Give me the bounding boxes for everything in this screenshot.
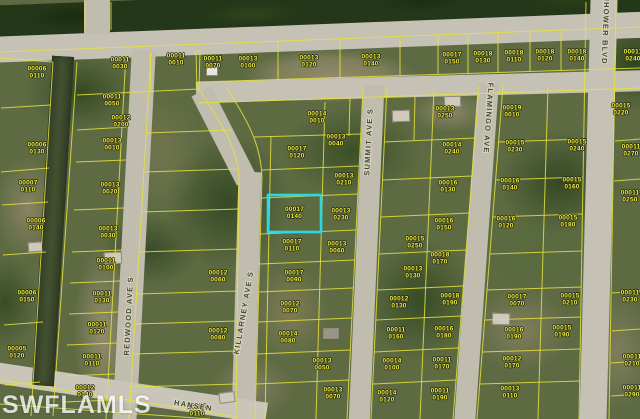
svg-text:00014: 00014 [377,390,396,397]
svg-text:00015: 00015 [567,139,586,146]
svg-text:00011: 00011 [624,49,640,56]
svg-text:0130: 0130 [29,149,44,156]
svg-text:00012: 00012 [111,115,130,122]
parcel-id-label: 000110230 [621,290,640,304]
parcel-id-label: 000130210 [334,173,353,187]
svg-text:00017: 00017 [282,239,301,246]
parcel-id-label: 000130050 [312,358,331,372]
parcel-id-label: 000180190 [440,293,459,307]
parcel-id-label: 000110070 [204,56,223,70]
street-name-label: KILLARNEY AVE S [232,270,256,355]
svg-text:00016: 00016 [434,218,453,225]
svg-text:0120: 0120 [379,397,394,404]
svg-text:00013: 00013 [361,54,380,61]
svg-text:00016: 00016 [496,216,515,223]
parcel-id-label: 000060130 [27,142,46,156]
parcel-id-label: 000110010 [167,53,186,67]
parcel-id-label: 000110160 [387,327,406,341]
parcel-id-label: 000110100 [97,258,116,272]
svg-text:00016: 00016 [434,326,453,333]
parcel-id-label: 000160190 [504,327,523,341]
svg-text:0210: 0210 [336,180,351,187]
svg-text:0130: 0130 [94,298,109,305]
svg-text:00013: 00013 [327,241,346,248]
svg-text:00017: 00017 [442,52,461,59]
parcel-id-label: 000070110 [18,180,37,194]
svg-text:00013: 00013 [334,173,353,180]
svg-text:00013: 00013 [100,182,119,189]
svg-text:00012: 00012 [208,328,227,335]
parcel-id-label: 000060110 [27,66,46,80]
svg-text:00013: 00013 [435,106,454,113]
parcel-id-label: 000130140 [361,54,380,68]
svg-text:00015: 00015 [552,325,571,332]
svg-text:0120: 0120 [301,62,316,69]
svg-text:0230: 0230 [622,297,637,304]
svg-text:0050: 0050 [314,365,329,372]
svg-text:00011: 00011 [103,94,122,101]
parcel-id-label: 000160130 [438,180,457,194]
svg-text:0160: 0160 [564,184,579,191]
parcel-lines-summit-flamingo [373,138,475,384]
parcel-id-label: 000110110 [83,354,102,368]
parcel-id-label: 000170090 [284,270,303,284]
svg-text:00013: 00013 [323,387,342,394]
svg-text:00015: 00015 [405,236,424,243]
svg-text:00015: 00015 [558,215,577,222]
svg-text:0160: 0160 [388,334,403,341]
parcel-id-label: 000170150 [442,52,461,66]
svg-text:0100: 0100 [98,265,113,272]
svg-text:0200: 0200 [113,122,128,129]
svg-text:0070: 0070 [282,308,297,315]
parcel-id-label: 000180170 [430,252,449,266]
svg-text:00019: 00019 [502,105,521,112]
svg-text:00013: 00013 [299,55,318,62]
svg-text:00011: 00011 [431,388,450,395]
svg-text:00005: 00005 [7,346,26,353]
parcel-id-label: 000150220 [611,103,630,117]
parcel-id-label: 000050120 [7,346,26,360]
svg-text:00016: 00016 [500,178,519,185]
svg-text:0030: 0030 [100,233,115,240]
parcel-id-label: 000110240 [624,49,640,63]
svg-text:00013: 00013 [331,208,350,215]
parcel-id-label: 000130060 [327,241,346,255]
parcel-id-label: 000120070 [280,301,299,315]
svg-text:0150: 0150 [19,297,34,304]
svg-text:00015: 00015 [560,293,579,300]
svg-text:00018: 00018 [567,49,586,56]
svg-text:00013: 00013 [312,358,331,365]
svg-text:00014: 00014 [382,358,401,365]
parcel-id-label: 000110120 [88,322,107,336]
svg-text:0040: 0040 [328,141,343,148]
svg-text:0150: 0150 [444,59,459,66]
svg-text:0110: 0110 [190,411,205,418]
svg-text:00016: 00016 [504,327,523,334]
svg-text:00014: 00014 [442,142,461,149]
parcel-id-label: 000130110 [500,386,519,400]
svg-text:0190: 0190 [432,395,447,402]
svg-text:0250: 0250 [407,243,422,250]
svg-text:0150: 0150 [436,225,451,232]
svg-text:0130: 0130 [391,303,406,310]
svg-text:0130: 0130 [475,58,490,65]
svg-text:00011: 00011 [387,327,406,334]
parcel-id-label: 000160180 [434,326,453,340]
svg-text:0080: 0080 [280,338,295,345]
svg-text:00012: 00012 [208,270,227,277]
svg-text:0090: 0090 [286,277,301,284]
parcel-id-label: 000110170 [433,357,452,371]
parcel-id-label: 000130040 [326,134,345,148]
svg-text:0100: 0100 [384,365,399,372]
parcel-id-label: 000060140 [26,218,45,232]
parcel-id-label: 000180130 [473,51,492,65]
parcel-id-label: 000110270 [622,144,640,158]
svg-text:0020: 0020 [102,189,117,196]
parcel-id-label: 000170120 [287,146,306,160]
svg-text:0190: 0190 [442,300,457,307]
svg-text:00013: 00013 [102,138,121,145]
parcel-id-label: 000130030 [98,226,117,240]
parcel-id-label: 000130010 [102,138,121,152]
svg-text:00016: 00016 [438,180,457,187]
svg-text:00011: 00011 [93,291,112,298]
parcel-id-label: 000060150 [17,290,36,304]
parcel-id-label: 000110030 [111,57,130,71]
svg-text:00013: 00013 [403,266,422,273]
svg-text:00006: 00006 [17,290,36,297]
svg-text:0110: 0110 [507,57,522,64]
parcel-id-label: 000110290 [623,385,640,399]
svg-text:0140: 0140 [363,61,378,68]
svg-text:00015: 00015 [505,140,524,147]
svg-text:00017: 00017 [284,270,303,277]
parcel-id-label: 000140080 [278,331,297,345]
parcel-id-label: 000130130 [403,266,422,280]
parcel-id-label: 000160120 [496,216,515,230]
svg-text:0170: 0170 [504,363,519,370]
svg-text:00015: 00015 [611,103,630,110]
svg-text:00018: 00018 [473,51,492,58]
parcel-id-label: 000110210 [623,354,640,368]
street-name-label: NHOWER BLVD [600,0,611,65]
svg-text:0010: 0010 [504,112,519,119]
svg-text:00011: 00011 [88,322,107,329]
svg-text:0250: 0250 [437,113,452,120]
parcel-id-label: 000120060 [208,270,227,284]
parcel-id-label: 000120200 [111,115,130,129]
svg-text:0110: 0110 [503,393,518,400]
parcel-id-label: 000120170 [502,356,521,370]
svg-text:00011: 00011 [433,357,452,364]
svg-text:0120: 0120 [537,56,552,63]
street-name-label: SUMMIT AVE S [362,108,375,176]
parcel-id-label: 000120130 [389,296,408,310]
svg-text:00011: 00011 [621,190,640,197]
svg-text:0110: 0110 [285,246,300,253]
svg-text:0010: 0010 [104,145,119,152]
svg-text:00007: 00007 [18,180,37,187]
svg-text:0140: 0140 [28,225,43,232]
svg-text:0250: 0250 [622,197,637,204]
svg-text:0220: 0220 [613,110,628,117]
svg-text:0130: 0130 [440,187,455,194]
parcel-id-label: 000140120 [377,390,396,404]
svg-text:00011: 00011 [623,354,640,361]
svg-text:0210: 0210 [562,300,577,307]
parcel-id-label: 000130070 [323,387,342,401]
svg-text:00006: 00006 [27,66,46,73]
svg-text:00013: 00013 [500,386,519,393]
svg-text:0110: 0110 [85,361,100,368]
parcel-id-label: 000110050 [103,94,122,108]
svg-text:00018: 00018 [504,50,523,57]
parcel-boundary-overlay: 0000601100000601300000701100000601400000… [0,0,640,419]
parcel-id-label: 000140010 [307,111,326,125]
svg-text:0120: 0120 [9,353,24,360]
svg-text:00011: 00011 [204,56,223,63]
parcel-id-label: 000130230 [331,208,350,222]
svg-text:00006: 00006 [26,218,45,225]
svg-text:0240: 0240 [569,146,584,153]
parcel-lines-canal-redwood [64,50,200,402]
parcel-id-label: 000180120 [535,49,554,63]
parcel-id-label: 000160150 [434,218,453,232]
svg-text:0070: 0070 [509,301,524,308]
parcel-id-label: 000110250 [621,190,640,204]
parcel-id-label: 000150230 [505,140,524,154]
parcel-id-label: 000180110 [504,50,523,64]
svg-text:0060: 0060 [210,277,225,284]
svg-text:00018: 00018 [430,252,449,259]
svg-text:0070: 0070 [325,394,340,401]
svg-text:0170: 0170 [432,259,447,266]
svg-text:00018: 00018 [535,49,554,56]
svg-text:0010: 0010 [168,60,183,67]
svg-text:0270: 0270 [623,151,638,158]
svg-text:00012: 00012 [389,296,408,303]
parcel-id-label: 000180140 [567,49,586,63]
svg-text:0110: 0110 [21,187,36,194]
parcel-id-label: 000130250 [435,106,454,120]
svg-text:00013: 00013 [98,226,117,233]
svg-text:00011: 00011 [621,290,640,297]
svg-text:00017: 00017 [507,294,526,301]
svg-text:00011: 00011 [623,385,640,392]
svg-text:0120: 0120 [289,153,304,160]
svg-text:0140: 0140 [502,185,517,192]
parcel-id-label: 000150210 [560,293,579,307]
aerial-map-view[interactable]: 0000601100000601300000701100000601400000… [0,0,640,419]
svg-text:0240: 0240 [625,56,640,63]
parcel-id-label: 000110190 [431,388,450,402]
svg-text:0080: 0080 [210,335,225,342]
parcel-id-label: 000130020 [100,182,119,196]
svg-text:0140: 0140 [287,213,302,220]
svg-text:0030: 0030 [112,64,127,71]
svg-text:0190: 0190 [554,332,569,339]
svg-text:0070: 0070 [205,63,220,70]
svg-text:00013: 00013 [326,134,345,141]
svg-text:00011: 00011 [167,53,186,60]
svg-text:0100: 0100 [240,63,255,70]
svg-text:0230: 0230 [507,147,522,154]
svg-text:0140: 0140 [569,56,584,63]
svg-text:0230: 0230 [333,215,348,222]
parcel-id-label: 000150180 [558,215,577,229]
svg-text:00011: 00011 [83,354,102,361]
parcel-id-label: 000160140 [500,178,519,192]
svg-text:0290: 0290 [624,392,639,399]
svg-text:0180: 0180 [436,333,451,340]
svg-text:00018: 00018 [440,293,459,300]
parcel-id-label: 000150160 [562,177,581,191]
parcel-id-label: 000150250 [405,236,424,250]
svg-text:00011: 00011 [622,144,640,151]
svg-text:0180: 0180 [560,222,575,229]
svg-text:00017: 00017 [287,146,306,153]
parcel-id-label: 000120080 [208,328,227,342]
parcel-id-label: 000130120 [299,55,318,69]
parcel-id-label: 000190010 [502,105,521,119]
svg-text:0060: 0060 [329,248,344,255]
parcel-id-label: 000170110 [282,239,301,253]
parcel-id-label: 000140240 [442,142,461,156]
parcel-id-label: 000150240 [567,139,586,153]
svg-text:0170: 0170 [434,364,449,371]
svg-text:00012: 00012 [502,356,521,363]
svg-text:0240: 0240 [444,149,459,156]
svg-text:0120: 0120 [498,223,513,230]
svg-text:00006: 00006 [27,142,46,149]
selected-parcel-id-label: 000170140 [285,206,304,220]
svg-text:00014: 00014 [307,111,326,118]
svg-text:0050: 0050 [104,101,119,108]
watermark: SWFLAMLS [2,391,152,419]
svg-text:0120: 0120 [89,329,104,336]
svg-text:0130: 0130 [405,273,420,280]
svg-text:0010: 0010 [309,118,324,125]
svg-text:00015: 00015 [562,177,581,184]
parcel-id-label: 000170070 [507,294,526,308]
parcel-id-label: 000130100 [238,56,257,70]
parcel-id-label: 000110130 [93,291,112,305]
parcel-id-label: 000150190 [552,325,571,339]
svg-text:00011: 00011 [111,57,130,64]
svg-text:0210: 0210 [624,361,639,368]
svg-text:00013: 00013 [238,56,257,63]
svg-text:0190: 0190 [506,334,521,341]
parcel-lines-redwood-killarney [131,130,239,387]
svg-text:00017: 00017 [285,206,304,213]
svg-text:00014: 00014 [278,331,297,338]
svg-text:00012: 00012 [280,301,299,308]
parcel-id-label: 000140100 [382,358,401,372]
svg-text:0110: 0110 [30,73,45,80]
svg-text:00011: 00011 [97,258,116,265]
